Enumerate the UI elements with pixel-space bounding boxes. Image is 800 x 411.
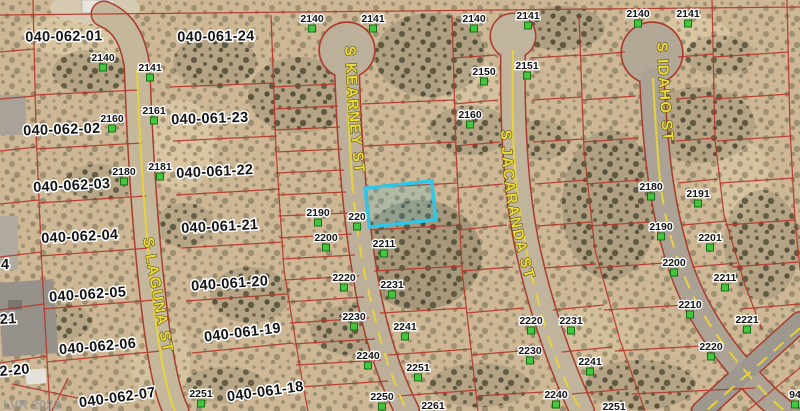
address-point-icon (481, 78, 488, 85)
address-point-icon (568, 327, 575, 334)
address-label[interactable]: 2151 (515, 60, 539, 72)
address-label[interactable]: 2141 (361, 13, 385, 25)
address-point-icon (147, 74, 154, 81)
address-label[interactable]: 2220 (332, 272, 356, 284)
address-point-icon (100, 64, 107, 71)
parcel-id-label[interactable]: 040-061-23 (171, 110, 249, 129)
address-label[interactable]: 2190 (306, 207, 330, 219)
address-point-icon (528, 327, 535, 334)
address-label[interactable]: 2231 (559, 315, 583, 327)
address-point-icon (467, 121, 474, 128)
address-point-icon (402, 333, 409, 340)
address-point-icon (381, 250, 388, 257)
address-label[interactable]: 2190 (649, 221, 673, 233)
address-label[interactable]: 2140 (626, 8, 650, 20)
address-point-icon (471, 25, 478, 32)
address-point-icon (415, 374, 422, 381)
address-point-icon (151, 117, 158, 124)
address-label[interactable]: 2211 (373, 238, 396, 250)
watermark: LVR 2023 (3, 397, 61, 411)
address-point-icon (198, 400, 205, 407)
parcel-map[interactable]: S LAGUNA ST S KEARNEY ST S JACARANDA ST … (0, 0, 800, 411)
address-point-icon (553, 401, 560, 408)
address-point-icon (635, 20, 642, 27)
address-point-icon (351, 323, 358, 330)
address-label[interactable]: 2161 (142, 105, 166, 117)
address-point-icon (315, 219, 322, 226)
address-label[interactable]: 2180 (639, 181, 663, 193)
address-point-icon (658, 233, 665, 240)
address-label[interactable]: 2240 (544, 389, 568, 401)
address-point-icon (722, 284, 729, 291)
address-point-icon (685, 20, 692, 27)
address-label[interactable]: 2140 (462, 13, 486, 25)
address-label[interactable]: 2251 (406, 362, 430, 374)
address-label[interactable]: 2241 (578, 356, 602, 368)
address-label[interactable]: 2141 (676, 8, 700, 20)
address-point-icon (354, 223, 361, 230)
address-point-icon (708, 353, 715, 360)
address-label[interactable]: 2210 (678, 299, 702, 311)
address-point-icon (157, 173, 164, 180)
address-label[interactable]: 2240 (356, 350, 380, 362)
address-label[interactable]: 2200 (662, 257, 686, 269)
address-label[interactable]: 2251 (602, 401, 626, 411)
address-point: 2251 (602, 401, 626, 411)
address-label[interactable]: 2250 (370, 391, 394, 403)
parcel-id-label[interactable]: 040-062-02 (23, 121, 101, 140)
address-label[interactable]: 2200 (314, 232, 338, 244)
parcel-id-label-partial[interactable]: 21 (0, 311, 17, 328)
address-point-icon (695, 200, 702, 207)
address-label[interactable]: 2261 (421, 400, 445, 411)
address-point-icon (707, 244, 714, 251)
address-label[interactable]: 2251 (189, 388, 213, 400)
address-label[interactable]: 2211 (714, 272, 737, 284)
address-point-icon (379, 403, 386, 410)
address-label[interactable]: 94 (789, 389, 800, 401)
address-label[interactable]: 220 (348, 211, 366, 223)
address-label[interactable]: 2141 (138, 62, 162, 74)
parcel-id-label[interactable]: 040-062-01 (25, 28, 102, 45)
address-point-icon (109, 125, 116, 132)
address-point-icon (524, 72, 531, 79)
address-label[interactable]: 2191 (686, 188, 710, 200)
address-label[interactable]: 2150 (472, 66, 496, 78)
address-point-icon (365, 362, 372, 369)
address-label[interactable]: 2160 (458, 109, 482, 121)
address-label[interactable]: 2201 (698, 232, 722, 244)
building (0, 95, 26, 135)
address-label[interactable]: 2220 (699, 341, 723, 353)
address-point-icon (309, 25, 316, 32)
address-label[interactable]: 2231 (380, 279, 404, 291)
address-label[interactable]: 2241 (393, 321, 417, 333)
address-point-icon (587, 368, 594, 375)
map-canvas[interactable]: S LAGUNA ST S KEARNEY ST S JACARANDA ST … (0, 0, 800, 411)
address-label[interactable]: 2181 (148, 161, 172, 173)
parcel-id-label-partial[interactable]: 4 (1, 257, 9, 273)
address-point-icon (792, 401, 799, 408)
highlighted-parcel[interactable] (365, 181, 436, 227)
address-label[interactable]: 2180 (112, 166, 136, 178)
address-point-icon (525, 22, 532, 29)
address-label[interactable]: 2221 (735, 314, 759, 326)
address-label[interactable]: 2220 (519, 315, 543, 327)
address-label[interactable]: 2140 (300, 13, 324, 25)
address-point-icon (527, 357, 534, 364)
address-label[interactable]: 2140 (91, 52, 115, 64)
address-point-icon (121, 178, 128, 185)
address-point-icon (389, 291, 396, 298)
address-label[interactable]: 2160 (100, 113, 124, 125)
address-point-icon (341, 284, 348, 291)
address-point-icon (323, 244, 330, 251)
address-point-icon (671, 269, 678, 276)
address-point-icon (370, 25, 377, 32)
address-point-icon (648, 193, 655, 200)
address-label[interactable]: 2141 (516, 10, 540, 22)
address-point-icon (687, 311, 694, 318)
parcel-id-label[interactable]: 040-061-24 (177, 28, 254, 45)
address-label[interactable]: 2230 (342, 311, 366, 323)
parcel-id-label-partial[interactable]: 2-20 (0, 361, 30, 380)
address-point-icon (744, 326, 751, 333)
address-label[interactable]: 2230 (518, 345, 542, 357)
address-point: 2261 (421, 400, 445, 411)
